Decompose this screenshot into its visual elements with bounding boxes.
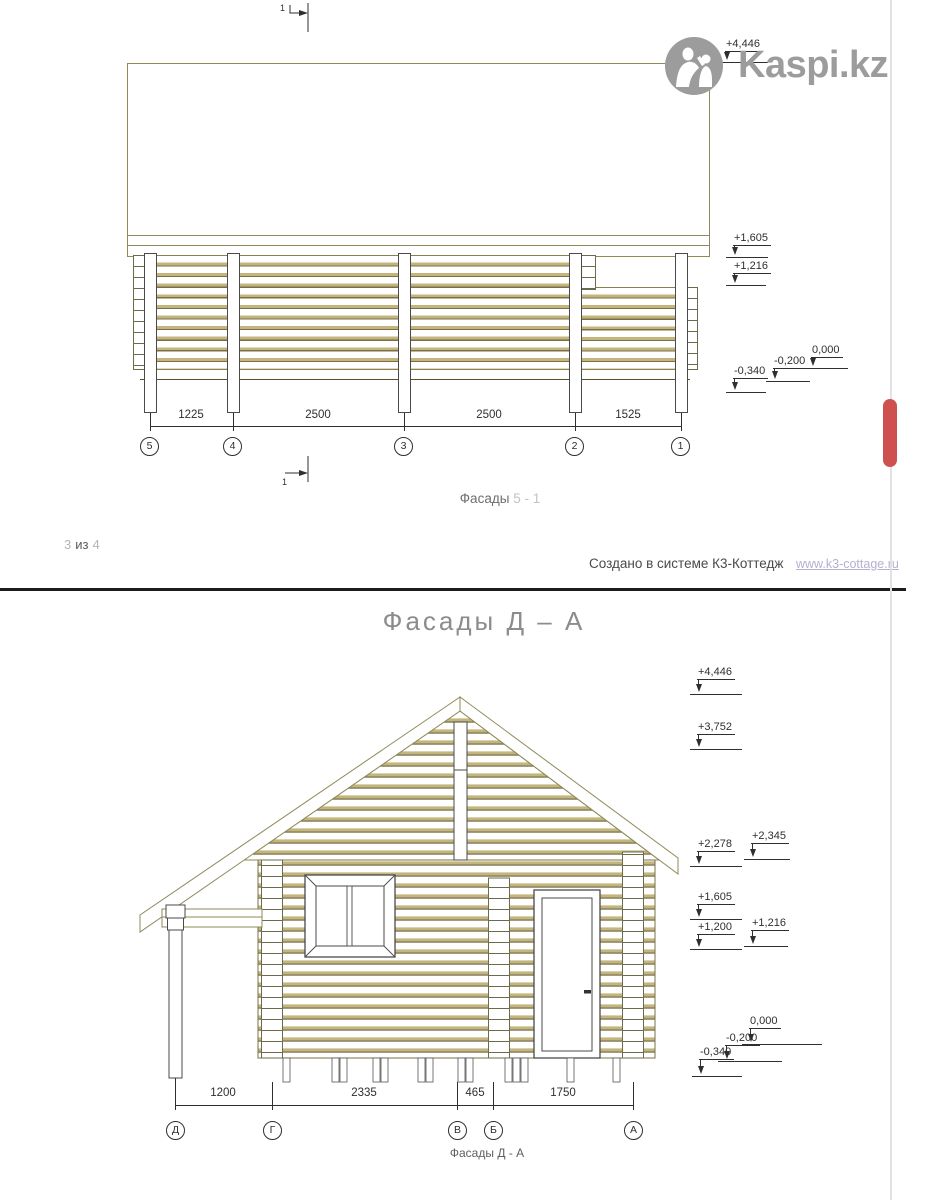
level-mark: +2,278 <box>690 838 742 867</box>
axis-bubble: 4 <box>223 437 242 456</box>
axis-bubble: 1 <box>671 437 690 456</box>
dim-label: 1200 <box>210 1087 236 1099</box>
level-mark: +1,605 <box>690 891 742 920</box>
roof-fascia <box>127 235 710 257</box>
porch-post <box>169 930 182 1078</box>
dim-label: 1750 <box>550 1087 576 1099</box>
kaspi-watermark-text: Kaspi.kz <box>738 44 888 87</box>
scrollbar-thumb[interactable] <box>883 399 897 467</box>
post-axis-2 <box>569 253 582 413</box>
axis-bubble: А <box>624 1121 643 1140</box>
page-indicator: 3из4 <box>64 537 100 552</box>
gable-post <box>454 722 467 860</box>
level-mark: -0,340 <box>726 365 766 393</box>
post-axis-5 <box>144 253 157 413</box>
level-mark: -0,200 <box>766 355 810 382</box>
gable-field <box>244 711 659 860</box>
dim-label: 1525 <box>615 409 641 421</box>
k3-cottage-link[interactable]: www.k3-cottage.ru <box>796 557 899 571</box>
axis-bubble: 3 <box>394 437 413 456</box>
dimension-line <box>175 1105 633 1106</box>
log-wall-main <box>133 255 582 370</box>
dim-label: 2500 <box>476 409 502 421</box>
drawing-caption: Фасады 5 - 1 <box>460 491 540 506</box>
level-mark: +1,216 <box>726 260 766 286</box>
level-mark: +1,216 <box>744 917 788 947</box>
section-marker-bottom: 1 <box>276 454 314 490</box>
roof-panel <box>127 63 710 237</box>
porch-post-cap <box>166 905 185 918</box>
log-ends-axis-a <box>623 852 644 1058</box>
level-mark: +4,446 <box>690 666 742 695</box>
dim-label: 2500 <box>305 409 331 421</box>
dim-label: 1225 <box>178 409 204 421</box>
dim-label: 465 <box>465 1087 484 1099</box>
axis-bubble: Б <box>484 1121 503 1140</box>
log-ends-axis-g <box>262 860 283 1058</box>
axis-bubble: 2 <box>565 437 584 456</box>
level-mark: +3,752 <box>690 721 742 750</box>
section-label: 1 <box>282 477 287 487</box>
created-by-note: Создано в системе К3-Коттедж <box>589 556 783 571</box>
section-label: 1 <box>280 3 285 13</box>
post-axis-3 <box>398 253 411 413</box>
axis-bubble: Г <box>263 1121 282 1140</box>
door-handle <box>584 990 591 994</box>
page-1-drawing: 1 1225 2500 2500 1525 5 <box>0 0 925 588</box>
level-mark: -0,340 <box>692 1046 742 1077</box>
dimension-line <box>150 426 681 427</box>
level-mark: +1,200 <box>690 921 742 950</box>
page-2-title: Фасады Д – А <box>383 606 586 637</box>
gable-elevation <box>120 690 700 1090</box>
drawing-caption: Фасады Д - А <box>450 1146 524 1160</box>
ground-line <box>140 379 690 380</box>
axis-bubble: 5 <box>140 437 159 456</box>
level-mark: +1,605 <box>726 232 768 258</box>
post-axis-4 <box>227 253 240 413</box>
level-mark: 0,000 <box>804 344 848 369</box>
window <box>305 875 395 957</box>
scrollbar-track[interactable] <box>890 0 892 1200</box>
document-viewer: 1 1225 2500 2500 1525 5 <box>0 0 925 1200</box>
axis-bubble: Д <box>166 1121 185 1140</box>
log-ends-terrace-top <box>580 255 596 290</box>
kaspi-logo-icon <box>665 37 723 95</box>
door <box>534 890 600 1058</box>
dim-label: 2335 <box>351 1087 377 1099</box>
post-axis-1 <box>675 253 688 413</box>
axis-bubble: В <box>448 1121 467 1140</box>
level-mark: +2,345 <box>744 830 790 860</box>
section-marker-top: 1 <box>276 2 314 36</box>
log-ends-axis-b <box>489 878 510 1058</box>
foundation-piles <box>283 1058 620 1082</box>
